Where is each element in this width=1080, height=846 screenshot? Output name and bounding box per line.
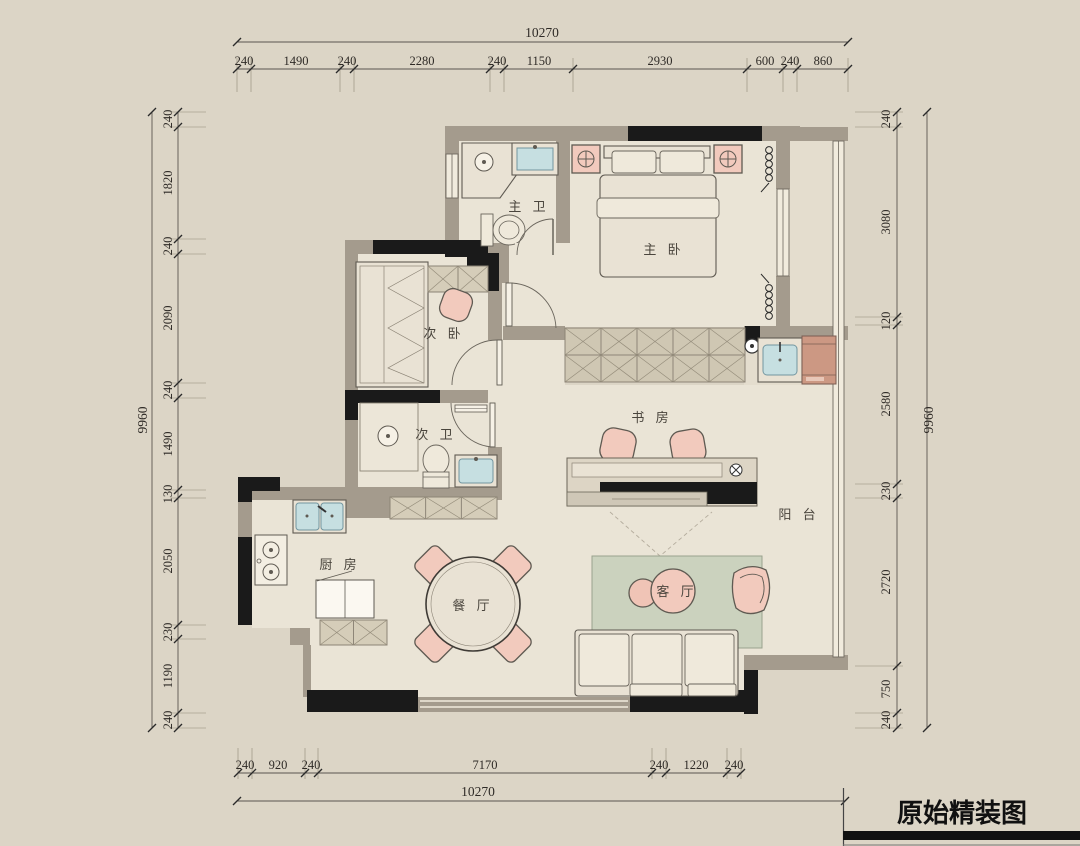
- svg-text:230: 230: [879, 482, 893, 501]
- dim-right-segments: [855, 108, 903, 732]
- label-dining: 餐 厅: [452, 598, 493, 613]
- dim-top-segment-labels: 240 1490 240 2280 240 1150 2930 600 240 …: [235, 54, 833, 68]
- svg-text:130: 130: [161, 485, 175, 504]
- dim-left-segments: [170, 108, 206, 732]
- svg-text:240: 240: [725, 758, 744, 772]
- washing-machine-icon: [802, 336, 836, 384]
- laundry-sink-icon: [758, 338, 802, 382]
- dim-label: 10270: [461, 784, 495, 799]
- title-block: 原始精装图: [843, 788, 1080, 846]
- label-living: 客 厅: [656, 584, 697, 599]
- svg-text:1150: 1150: [527, 54, 552, 68]
- wardrobe-icon: [565, 328, 745, 382]
- nightstand-icon: [572, 145, 600, 173]
- svg-text:2580: 2580: [879, 392, 893, 417]
- svg-text:1190: 1190: [161, 664, 175, 689]
- svg-text:1220: 1220: [684, 758, 709, 772]
- balcony-window-icon: [833, 141, 844, 657]
- svg-text:3080: 3080: [879, 210, 893, 235]
- label-kitchen: 厨 房: [319, 557, 360, 572]
- socket-symbol-icon: [730, 464, 742, 476]
- kitchen-cabinet-icon: [320, 620, 387, 645]
- dim-label: 9960: [921, 406, 936, 433]
- svg-text:240: 240: [161, 381, 175, 400]
- dim-left-segment-labels: 240 1820 240 2090 240 1490 130 2050 230 …: [161, 110, 175, 730]
- bedroom-window-icon: [777, 189, 789, 276]
- svg-text:240: 240: [879, 110, 893, 129]
- nightstand-icon: [714, 145, 742, 173]
- svg-text:1820: 1820: [161, 171, 175, 196]
- dim-label: 10270: [525, 25, 559, 40]
- svg-text:600: 600: [756, 54, 775, 68]
- svg-text:920: 920: [269, 758, 288, 772]
- hall-cabinet-icon: [390, 497, 497, 519]
- label-study: 书 房: [631, 410, 672, 425]
- svg-text:240: 240: [161, 110, 175, 129]
- svg-text:7170: 7170: [473, 758, 498, 772]
- kitchen-sink-icon: [293, 500, 346, 533]
- sheet-title: 原始精装图: [897, 799, 1027, 828]
- svg-text:860: 860: [814, 54, 833, 68]
- room-dining: 餐 厅: [412, 543, 533, 664]
- floor-plan-drawing: 主 卫: [0, 0, 1080, 846]
- svg-text:1490: 1490: [284, 54, 309, 68]
- svg-text:1490: 1490: [161, 432, 175, 457]
- title-underline: [843, 831, 1080, 840]
- wardrobe-icon: [428, 266, 488, 292]
- stove-icon: [255, 535, 287, 585]
- floor-plan-sheet: 主 卫: [0, 0, 1080, 846]
- bath-window-icon: [446, 154, 458, 198]
- svg-text:240: 240: [781, 54, 800, 68]
- sofa-icon: [575, 630, 738, 696]
- svg-text:2280: 2280: [410, 54, 435, 68]
- dim-label: 9960: [135, 406, 150, 433]
- svg-text:240: 240: [235, 54, 254, 68]
- label-master-bath: 主 卫: [508, 199, 549, 214]
- svg-text:2930: 2930: [648, 54, 673, 68]
- svg-text:230: 230: [161, 623, 175, 642]
- svg-text:240: 240: [236, 758, 255, 772]
- single-bed-icon: [356, 262, 428, 387]
- svg-text:240: 240: [161, 237, 175, 256]
- svg-text:240: 240: [488, 54, 507, 68]
- towel-bar-icon: [455, 405, 487, 412]
- svg-text:240: 240: [302, 758, 321, 772]
- vanity-sink-icon: [512, 143, 558, 175]
- svg-text:240: 240: [879, 711, 893, 730]
- dim-right-segment-labels: 240 3080 120 2580 230 2720 750 240: [879, 110, 893, 730]
- svg-text:2720: 2720: [879, 570, 893, 595]
- svg-text:120: 120: [879, 312, 893, 331]
- dim-bottom-segment-labels: 240 920 240 7170 240 1220 240: [236, 758, 744, 772]
- label-second-bath: 次 卫: [415, 427, 456, 442]
- label-second-bedroom: 次 卧: [423, 326, 464, 341]
- label-balcony: 阳 台: [778, 507, 819, 522]
- svg-text:240: 240: [338, 54, 357, 68]
- svg-text:240: 240: [161, 711, 175, 730]
- label-master-bedroom: 主 卧: [643, 242, 684, 257]
- sink-icon: [455, 455, 497, 487]
- toilet-icon: [481, 214, 525, 246]
- svg-text:2050: 2050: [161, 549, 175, 574]
- toilet-icon: [423, 445, 449, 488]
- svg-text:750: 750: [879, 680, 893, 699]
- desk-icon: [567, 458, 757, 506]
- svg-text:240: 240: [650, 758, 669, 772]
- svg-text:2090: 2090: [161, 306, 175, 331]
- dim-bottom-total: [233, 797, 849, 805]
